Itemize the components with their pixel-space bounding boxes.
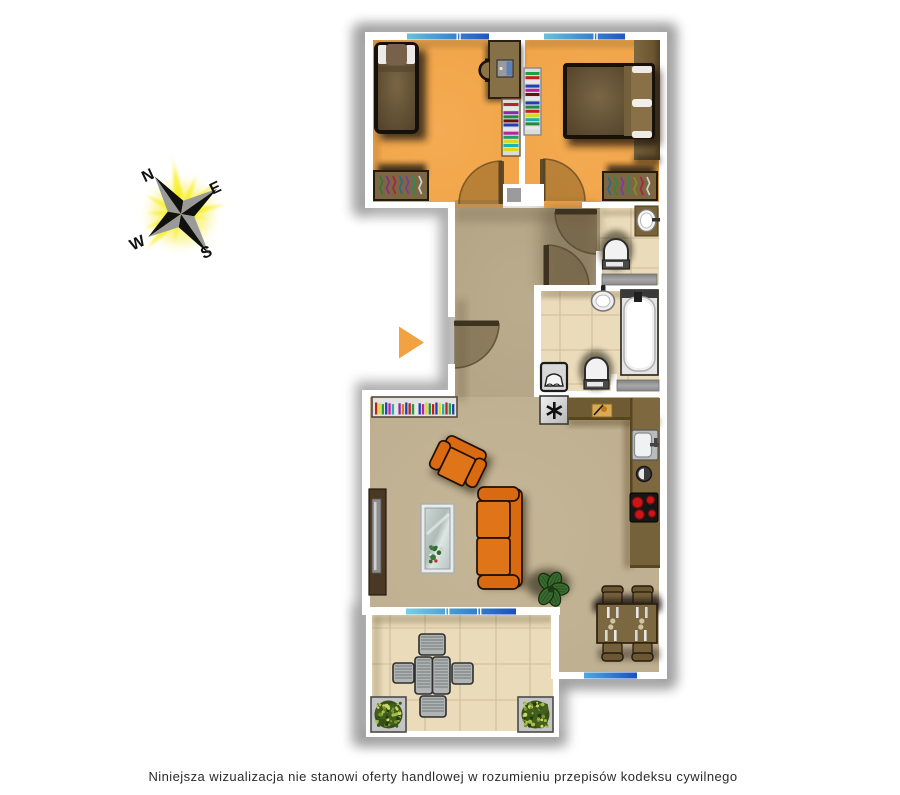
svg-text:N: N: [139, 166, 157, 186]
svg-text:W: W: [127, 232, 149, 254]
svg-text:S: S: [198, 243, 215, 263]
